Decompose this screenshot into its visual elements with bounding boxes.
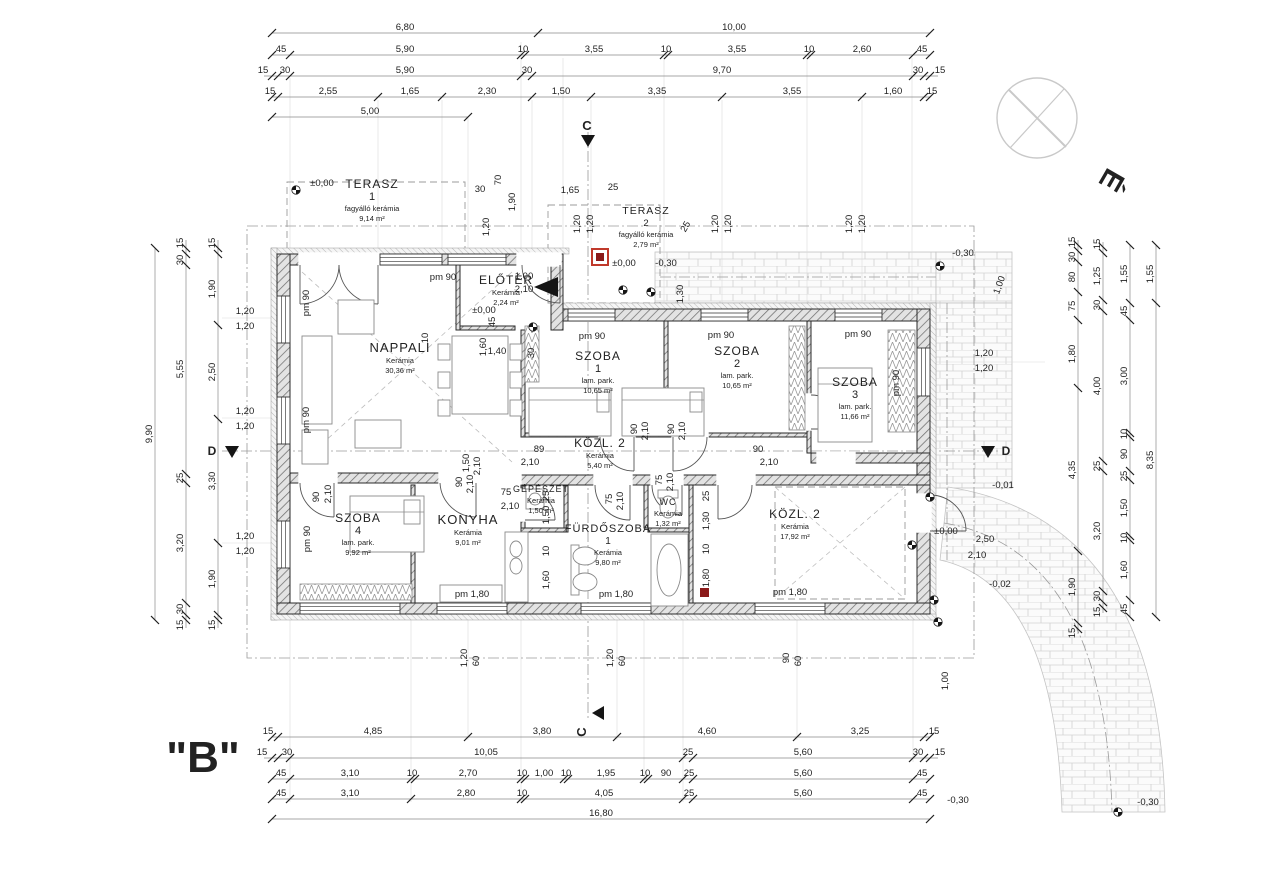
- annotation-label: 1,65: [561, 185, 580, 196]
- section-arrow: [534, 277, 558, 297]
- dim-label: 30: [282, 747, 293, 758]
- annotation-label: 10: [541, 546, 552, 557]
- room-area: 9,92 m²: [345, 548, 371, 557]
- dim-label: 1,50: [1119, 499, 1130, 518]
- level-marker: [1114, 808, 1122, 816]
- room-name: WC: [660, 497, 677, 507]
- room-area: 9,14 m²: [359, 214, 385, 223]
- annotation-label: D: [1002, 444, 1011, 458]
- furniture-item: [510, 400, 522, 416]
- dim-label: 8,35: [1145, 451, 1156, 470]
- dim-chain: 455,90103,55103,55102,6045: [268, 44, 934, 59]
- wall: [689, 485, 693, 603]
- dim-label: 5,90: [396, 44, 415, 55]
- dim-label: 6,80: [396, 22, 415, 33]
- window: [448, 254, 506, 265]
- annotation-label: 75: [604, 494, 615, 505]
- room-material: Kerámia: [781, 522, 810, 531]
- room-number: 2: [643, 218, 648, 229]
- dim-label: 15: [175, 620, 186, 631]
- wall: [807, 321, 811, 453]
- annotation-label: 1,20: [459, 649, 470, 668]
- dim-label: 1,90: [207, 570, 218, 589]
- annotation-label: É: [1092, 163, 1131, 197]
- dim-label: 2,30: [478, 86, 497, 97]
- annotation-label: 2,10: [323, 485, 334, 504]
- dim-label: 10: [407, 768, 418, 779]
- annotation-label: pm 90: [301, 290, 312, 316]
- annotation-label: 1,00: [940, 672, 951, 691]
- annotation-label: -0,30: [947, 795, 969, 806]
- dim-label: 10: [561, 768, 572, 779]
- door: [673, 437, 707, 471]
- level-marker: [934, 618, 942, 626]
- dim-label: 10: [640, 768, 651, 779]
- annotation-label: pm 1,80: [599, 589, 633, 600]
- annotation-label: 1,20: [857, 215, 868, 234]
- dim-label: 3,25: [851, 726, 870, 737]
- annotation-label: 1,90: [507, 193, 518, 212]
- dim-label: 2,60: [853, 44, 872, 55]
- room-material: Kerámia: [386, 356, 415, 365]
- dim-label: 5,60: [794, 788, 813, 799]
- fixture: [573, 573, 597, 591]
- room-material: fagyálló kerámia: [345, 204, 400, 213]
- room-name: SZOBA: [335, 511, 381, 525]
- annotation-label: 75: [654, 475, 665, 486]
- dim-label: 1,80: [1067, 345, 1078, 364]
- dim-label: 45: [276, 44, 287, 55]
- wall: [644, 485, 648, 528]
- dim-label: 3,20: [1092, 522, 1103, 541]
- annotation-label: 1,20: [844, 215, 855, 234]
- furniture-item: [597, 392, 609, 412]
- dim-label: 5,90: [396, 65, 415, 76]
- wall: [648, 528, 689, 532]
- window: [917, 348, 930, 396]
- annotation-label: C: [582, 118, 592, 133]
- fixture: [510, 541, 522, 557]
- dim-label: 2,70: [459, 768, 478, 779]
- annotation-label: 10: [701, 544, 712, 555]
- level-marker: [936, 262, 944, 270]
- room-material: Kerámia: [454, 528, 483, 537]
- dim-label: 15: [929, 726, 940, 737]
- annotation-label: 1,20: [481, 218, 492, 237]
- dim-label: 1,60: [884, 86, 903, 97]
- level-marker: [926, 493, 934, 501]
- annotation-label: 75: [501, 487, 512, 498]
- room-area: 9,80 m²: [595, 558, 621, 567]
- window: [277, 521, 290, 568]
- window: [701, 309, 748, 321]
- annotation-label: 1,20: [572, 215, 583, 234]
- room-name: SZOBA: [714, 344, 760, 358]
- room-material: lam. park.: [839, 402, 872, 411]
- dim-label: 30: [175, 604, 186, 615]
- floor-plan-drawing: 6,8010,00455,90103,55103,55102,604515305…: [0, 0, 1280, 883]
- fixture: [657, 544, 681, 596]
- annotation-label: 1,20: [710, 215, 721, 234]
- annotation-label: 60: [617, 656, 628, 667]
- dim-label: 15: [1092, 607, 1103, 618]
- dim-label: 4,05: [595, 788, 614, 799]
- annotation-label: 30: [475, 184, 486, 195]
- dim-label: 10: [1119, 533, 1130, 544]
- annotation-label: pm 1,80: [455, 589, 489, 600]
- dim-label: 1,50: [552, 86, 571, 97]
- room-name: TERASZ: [622, 205, 669, 217]
- annotation-label: ±0,00: [934, 526, 958, 537]
- room-area: 10,65 m²: [583, 386, 613, 395]
- furniture-item: [438, 400, 450, 416]
- dim-label: 1,25: [1092, 267, 1103, 286]
- annotation-label: pm 90: [302, 526, 313, 552]
- dim-label: 3,35: [648, 86, 667, 97]
- annotation-label: 1,20: [236, 421, 255, 432]
- room-number: 1: [595, 363, 601, 375]
- dim-label: 1,95: [597, 768, 616, 779]
- annotation-label: 1,20: [236, 306, 255, 317]
- dim-label: 25: [1092, 461, 1103, 472]
- red-marker: [700, 588, 709, 597]
- dim-label: 30: [1067, 252, 1078, 263]
- dim-label: 10: [661, 44, 672, 55]
- dim-label: 15: [1067, 237, 1078, 248]
- level-marker: [292, 186, 300, 194]
- section-arrow: [592, 706, 604, 720]
- annotation-label: 1,20: [236, 546, 255, 557]
- annotation-label: 25: [608, 182, 619, 193]
- annotation-label: 2,10: [640, 422, 651, 441]
- annotation-label: -0,02: [989, 579, 1011, 590]
- annotation-label: 30: [526, 348, 537, 359]
- annotation-label: 60: [793, 656, 804, 667]
- dim-label: 10: [1119, 429, 1130, 440]
- dim-chain: 15305,55253,203015: [175, 238, 190, 631]
- annotation-label: -0,30: [1137, 797, 1159, 808]
- dim-label: 15: [265, 86, 276, 97]
- annotation-label: D: [208, 444, 217, 458]
- annotation-label: 2,10: [472, 457, 483, 476]
- dim-chain: 453,10102,70101,00101,951090255,6045: [268, 768, 934, 783]
- dim-chain: 151,902,503,301,9015: [207, 238, 222, 631]
- dim-chain: 9,90: [144, 244, 159, 624]
- dim-label: 15: [257, 747, 268, 758]
- dim-label: 10: [517, 788, 528, 799]
- room-number: 1: [605, 536, 611, 547]
- annotation-label: 2,50: [976, 534, 995, 545]
- level-marker: [619, 286, 627, 294]
- dim-label: 3,10: [341, 768, 360, 779]
- dim-label: 15: [207, 238, 218, 249]
- room-name: TERASZ: [345, 177, 398, 191]
- room-area: 1,32 m²: [655, 519, 681, 528]
- dim-chain: 15305,90309,703015: [258, 65, 946, 80]
- annotation-label: "B": [166, 733, 240, 782]
- annotation-label: 1,20: [975, 348, 994, 359]
- dim-label: 3,55: [783, 86, 802, 97]
- insulation: [563, 303, 936, 309]
- room-name: SZOBA: [832, 375, 878, 389]
- north-symbol: [997, 78, 1077, 158]
- floor-plan-page: 6,8010,00455,90103,55103,55102,604515305…: [0, 0, 1280, 883]
- dim-label: 45: [1119, 604, 1130, 615]
- dim-label: 30: [1092, 300, 1103, 311]
- room-material: Kerámia: [654, 509, 683, 518]
- furniture-item: [302, 430, 328, 464]
- dim-label: 2,50: [207, 363, 218, 382]
- room-area: 2,24 m²: [493, 298, 519, 307]
- level-marker: [647, 288, 655, 296]
- dim-label: 4,35: [1067, 461, 1078, 480]
- dim-label: 15: [935, 65, 946, 76]
- dim-chain: 152,551,652,301,503,353,551,6015: [265, 86, 938, 101]
- annotation-label: 1,50: [461, 454, 472, 473]
- dim-label: 10: [804, 44, 815, 55]
- dim-label: 9,90: [144, 425, 155, 444]
- dim-label: 30: [175, 255, 186, 266]
- annotation-label: 1,30: [701, 512, 712, 531]
- dim-label: 15: [175, 238, 186, 249]
- dim-label: 1,60: [1119, 561, 1130, 580]
- dim-label: 5,60: [794, 747, 813, 758]
- section-arrow: [581, 135, 595, 147]
- window: [277, 296, 290, 343]
- dim-label: 5,00: [361, 106, 380, 117]
- furniture-item: [690, 392, 702, 412]
- dim-label: 15: [927, 86, 938, 97]
- dim-label: 3,80: [533, 726, 552, 737]
- dim-label: 4,60: [698, 726, 717, 737]
- room-number: 3: [852, 389, 858, 401]
- room-area: 5,40 m²: [587, 461, 613, 470]
- room-label: KÖZL. 2Kerámia17,92 m²: [769, 507, 821, 541]
- dim-label: 4,00: [1092, 377, 1103, 396]
- annotation-label: 1,40: [488, 346, 507, 357]
- room-area: 2,79 m²: [633, 240, 659, 249]
- dim-label: 1,55: [1119, 265, 1130, 284]
- dim-label: 1,65: [401, 86, 420, 97]
- annotation-label: 25: [678, 219, 693, 234]
- dim-chain: 154,853,804,603,2515: [263, 726, 940, 741]
- paving-area: [655, 252, 936, 303]
- level-marker: [908, 541, 916, 549]
- annotation-label: ±0,00: [310, 178, 334, 189]
- dim-label: 1,55: [1145, 265, 1156, 284]
- furniture-item: [355, 420, 401, 448]
- annotation-label: 90: [311, 492, 322, 503]
- annotation-label: 70: [493, 175, 504, 186]
- dim-label: 3,00: [1119, 367, 1130, 386]
- annotation-label: 1,60: [541, 571, 552, 590]
- annotation-label: -0,01: [992, 480, 1014, 491]
- dim-label: 25: [175, 473, 186, 484]
- annotation-label: 90: [781, 653, 792, 664]
- window: [437, 603, 507, 614]
- annotation-label: 89: [534, 444, 545, 455]
- dim-chain: 6,8010,00: [268, 22, 934, 37]
- annotation-label: ±0,00: [612, 258, 636, 269]
- dim-label: 25: [684, 788, 695, 799]
- dim-label: 15: [1092, 239, 1103, 250]
- dim-label: 3,20: [175, 534, 186, 553]
- dim-label: 45: [1119, 306, 1130, 317]
- room-area: 9,01 m²: [455, 538, 481, 547]
- window: [755, 603, 825, 614]
- annotation-label: 60: [471, 656, 482, 667]
- annotation-label: 1,20: [236, 406, 255, 417]
- dim-label: 30: [913, 65, 924, 76]
- dim-label: 45: [276, 768, 287, 779]
- room-label: KÖZL. 2Kerámia5,40 m²: [574, 436, 626, 470]
- annotation-label: pm 90: [845, 329, 871, 340]
- window: [380, 254, 442, 265]
- dim-label: 80: [1067, 272, 1078, 283]
- room-material: Kerámia: [586, 451, 615, 460]
- room-area: 17,92 m²: [780, 532, 810, 541]
- insulation: [271, 248, 277, 620]
- dim-label: 15: [258, 65, 269, 76]
- room-material: fagyálló kerámia: [619, 230, 674, 239]
- dim-label: 10: [517, 768, 528, 779]
- dim-label: 1,90: [207, 280, 218, 299]
- annotation-label: 90: [629, 424, 640, 435]
- dim-label: 30: [1092, 591, 1103, 602]
- dim-label: 45: [917, 44, 928, 55]
- room-name: KÖZL. 2: [574, 436, 626, 450]
- annotation-label: 1,20: [236, 321, 255, 332]
- window: [835, 309, 882, 321]
- annotation-label: 2,10: [665, 473, 676, 492]
- dim-label: 16,80: [589, 808, 613, 819]
- annotation-label: 25: [701, 491, 712, 502]
- dim-chain: 5,00: [268, 106, 472, 121]
- window: [300, 603, 400, 614]
- annotation-label: pm 90: [891, 370, 902, 396]
- dim-label: 1,00: [535, 768, 554, 779]
- annotation-label: pm 1,80: [773, 587, 807, 598]
- annotation-label: 2,10: [465, 475, 476, 494]
- dim-label: 4,85: [364, 726, 383, 737]
- annotation-label: 1,20: [723, 215, 734, 234]
- wardrobe-radiator: [789, 326, 805, 430]
- dim-label: 90: [1119, 449, 1130, 460]
- annotation-label: 2,10: [677, 422, 688, 441]
- room-name: KONYHA: [438, 512, 499, 527]
- furniture-item: [338, 300, 374, 334]
- dim-label: 3,55: [585, 44, 604, 55]
- wall: [521, 528, 568, 532]
- dim-chain: 453,102,80104,05255,6045: [268, 788, 934, 803]
- annotation-label: 2,10: [615, 492, 626, 511]
- annotation-label: pm 90: [579, 331, 605, 342]
- room-name: NAPPALI: [370, 340, 431, 355]
- room-material: lam. park.: [342, 538, 375, 547]
- room-name: FÜRDŐSZOBA: [565, 521, 651, 535]
- door: [718, 485, 752, 519]
- room-name: GÉPÉSZET: [513, 484, 569, 494]
- dim-label: 45: [917, 768, 928, 779]
- level-marker: [529, 323, 537, 331]
- annotation-label: 2,10: [521, 457, 540, 468]
- room-area: 10,65 m²: [722, 381, 752, 390]
- dim-label: 9,70: [713, 65, 732, 76]
- room-material: lam. park.: [721, 371, 754, 380]
- dim-label: 30: [522, 65, 533, 76]
- dim-label: 45: [276, 788, 287, 799]
- dim-label: 3,10: [341, 788, 360, 799]
- annotation-label: pm 90: [301, 407, 312, 433]
- annotation-label: 1,80: [701, 569, 712, 588]
- dim-chain: 1,55453,001090251,50101,6045: [1119, 241, 1134, 621]
- room-area: 1,50 m²: [528, 506, 554, 515]
- dim-label: 75: [1067, 301, 1078, 312]
- dim-chain: 16,80: [268, 808, 934, 823]
- dim-label: 25: [683, 747, 694, 758]
- annotation-label: 1,20: [236, 531, 255, 542]
- wall: [456, 265, 460, 330]
- wardrobe-radiator: [300, 584, 412, 600]
- annotation-label: 1,20: [585, 215, 596, 234]
- room-name: ELŐTÉR: [479, 272, 533, 287]
- annotation-label: 2,10: [501, 501, 520, 512]
- furniture-item: [510, 344, 522, 360]
- annotation-label: pm 90: [430, 272, 456, 283]
- dim-label: 5,60: [794, 768, 813, 779]
- annotation-label: 90: [753, 444, 764, 455]
- dim-label: 25: [1119, 471, 1130, 482]
- dim-label: 30: [913, 747, 924, 758]
- dim-chain: 1,558,35: [1145, 241, 1160, 621]
- dim-label: 10,00: [722, 22, 746, 33]
- annotation-label: 45: [487, 317, 498, 328]
- dim-label: 5,55: [175, 360, 186, 379]
- room-area: 11,66 m²: [840, 412, 870, 421]
- annotation-label: 2,10: [760, 457, 779, 468]
- room-name: SZOBA: [575, 349, 621, 363]
- dim-label: 25: [684, 768, 695, 779]
- room-number: 4: [355, 525, 361, 537]
- window: [568, 309, 615, 321]
- insulation: [271, 614, 936, 620]
- annotation-label: 1,60: [478, 338, 489, 357]
- dim-label: 10: [518, 44, 529, 55]
- room-number: 1: [369, 191, 375, 203]
- room-label: WCKerámia1,32 m²: [654, 497, 683, 528]
- door: [339, 265, 378, 304]
- annotation-label: pm 90: [708, 330, 734, 341]
- annotation-label: 90: [454, 477, 465, 488]
- annotation-label: 1,30: [675, 285, 686, 304]
- dim-label: 45: [917, 788, 928, 799]
- room-material: lam. park.: [582, 376, 615, 385]
- dim-label: 90: [661, 768, 672, 779]
- annotation-label: 90: [666, 424, 677, 435]
- dim-label: 2,55: [319, 86, 338, 97]
- dim-label: 15: [1067, 628, 1078, 639]
- room-label: KONYHAKerámia9,01 m²: [438, 512, 499, 547]
- annotation-label: 2,10: [968, 550, 987, 561]
- dim-label: 3,55: [728, 44, 747, 55]
- window: [277, 397, 290, 444]
- room-number: 2: [734, 358, 740, 370]
- annotation-label: -0,30: [952, 248, 974, 259]
- room-material: Kerámia: [492, 288, 521, 297]
- dim-label: 15: [263, 726, 274, 737]
- dim-label: 15: [207, 620, 218, 631]
- dim-label: 15: [935, 747, 946, 758]
